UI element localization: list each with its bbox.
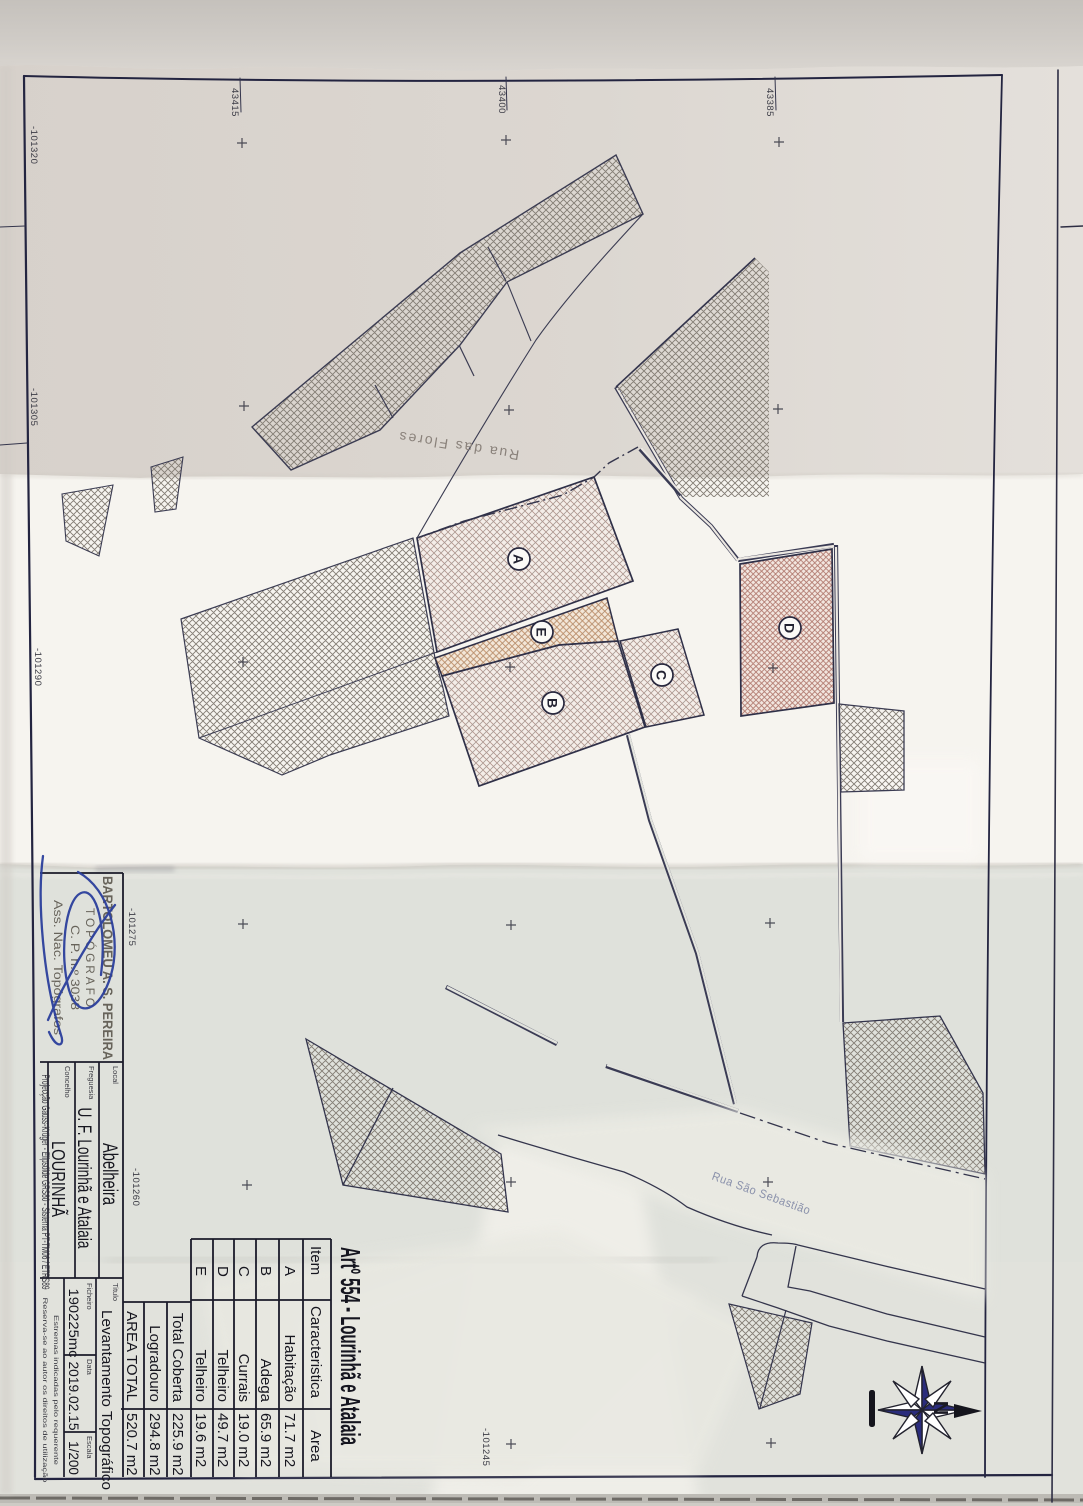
svg-text:65.9 m2: 65.9 m2 bbox=[257, 1413, 274, 1467]
svg-text:D: D bbox=[782, 623, 798, 633]
svg-text:Abelheira: Abelheira bbox=[98, 1143, 121, 1205]
svg-text:TOPÓGRAFO: TOPÓGRAFO bbox=[83, 908, 98, 1010]
svg-text:D: D bbox=[214, 1266, 231, 1277]
svg-text:Logradouro: Logradouro bbox=[146, 1325, 163, 1402]
svg-text:-101320: -101320 bbox=[28, 126, 39, 164]
svg-text:Telheiro: Telheiro bbox=[192, 1349, 209, 1402]
svg-text:C: C bbox=[654, 670, 670, 680]
svg-text:Artº 554 - Lourinhã e Atalaia: Artº 554 - Lourinhã e Atalaia bbox=[335, 1247, 366, 1445]
svg-text:Local: Local bbox=[111, 1066, 120, 1084]
svg-text:-101245: -101245 bbox=[480, 1428, 491, 1466]
svg-text:B: B bbox=[257, 1266, 274, 1276]
svg-text:Concelho: Concelho bbox=[63, 1066, 72, 1098]
svg-text:Ass. Nac. Topógrafos: Ass. Nac. Topógrafos bbox=[51, 900, 63, 1035]
svg-text:190225mc: 190225mc bbox=[66, 1289, 81, 1358]
svg-text:2019.02.15: 2019.02.15 bbox=[66, 1362, 81, 1431]
svg-text:71.7 m2: 71.7 m2 bbox=[281, 1413, 298, 1467]
svg-text:B: B bbox=[545, 698, 561, 708]
svg-text:520.7 m2: 520.7 m2 bbox=[123, 1413, 140, 1476]
svg-text:Currais: Currais bbox=[235, 1354, 252, 1402]
svg-text:A: A bbox=[511, 554, 527, 564]
svg-text:Freguesia: Freguesia bbox=[87, 1066, 96, 1100]
svg-text:C: C bbox=[235, 1266, 252, 1277]
svg-text:43415: 43415 bbox=[229, 88, 240, 117]
svg-text:Escala: Escala bbox=[85, 1436, 94, 1459]
svg-text:294.8 m2: 294.8 m2 bbox=[146, 1413, 163, 1476]
svg-text:U. F. Lourinhã e Atalaia: U. F. Lourinhã e Atalaia bbox=[73, 1108, 94, 1249]
svg-text:Reserva-se ao autor os direito: Reserva-se ao autor os direitos de utili… bbox=[41, 1298, 48, 1484]
svg-text:Adega: Adega bbox=[257, 1359, 274, 1403]
svg-text:A: A bbox=[281, 1266, 298, 1276]
svg-text:Item: Item bbox=[307, 1246, 324, 1275]
svg-text:49.7 m2: 49.7 m2 bbox=[214, 1413, 231, 1467]
svg-text:Levantamento Topográfico: Levantamento Topográfico bbox=[98, 1310, 114, 1490]
svg-text:Habitação: Habitação bbox=[281, 1334, 298, 1402]
svg-text:E: E bbox=[192, 1266, 209, 1276]
svg-text:AREA TOTAL: AREA TOTAL bbox=[123, 1311, 140, 1402]
svg-text:19.0 m2: 19.0 m2 bbox=[235, 1413, 252, 1467]
svg-text:19.6 m2: 19.6 m2 bbox=[192, 1413, 209, 1467]
svg-text:1/200: 1/200 bbox=[66, 1441, 81, 1475]
svg-text:-101275: -101275 bbox=[126, 908, 137, 946]
svg-text:Telheiro: Telheiro bbox=[214, 1349, 231, 1402]
svg-text:43400: 43400 bbox=[496, 85, 507, 114]
svg-text:Projecção Gauss-Krüger - Elips: Projecção Gauss-Krüger - Elipsóide GRS80… bbox=[39, 1075, 51, 1290]
svg-text:Data: Data bbox=[85, 1359, 94, 1376]
svg-text:43385: 43385 bbox=[764, 88, 775, 117]
svg-text:-101260: -101260 bbox=[130, 1168, 141, 1206]
svg-text:-101305: -101305 bbox=[28, 388, 39, 426]
svg-text:Caracteristica: Caracteristica bbox=[307, 1306, 324, 1399]
svg-text:225.9 m2: 225.9 m2 bbox=[169, 1413, 186, 1476]
svg-text:N: N bbox=[929, 1401, 951, 1415]
svg-text:Ficheiro: Ficheiro bbox=[85, 1283, 94, 1310]
svg-text:E: E bbox=[534, 627, 550, 636]
svg-text:Estremas indicadas pelo requer: Estremas indicadas pelo requerente bbox=[52, 1315, 59, 1466]
svg-text:Titulo: Titulo bbox=[111, 1283, 120, 1301]
svg-text:Area: Area bbox=[307, 1430, 324, 1462]
svg-text:-101290: -101290 bbox=[32, 648, 43, 686]
svg-text:Total Coberta: Total Coberta bbox=[169, 1313, 186, 1403]
